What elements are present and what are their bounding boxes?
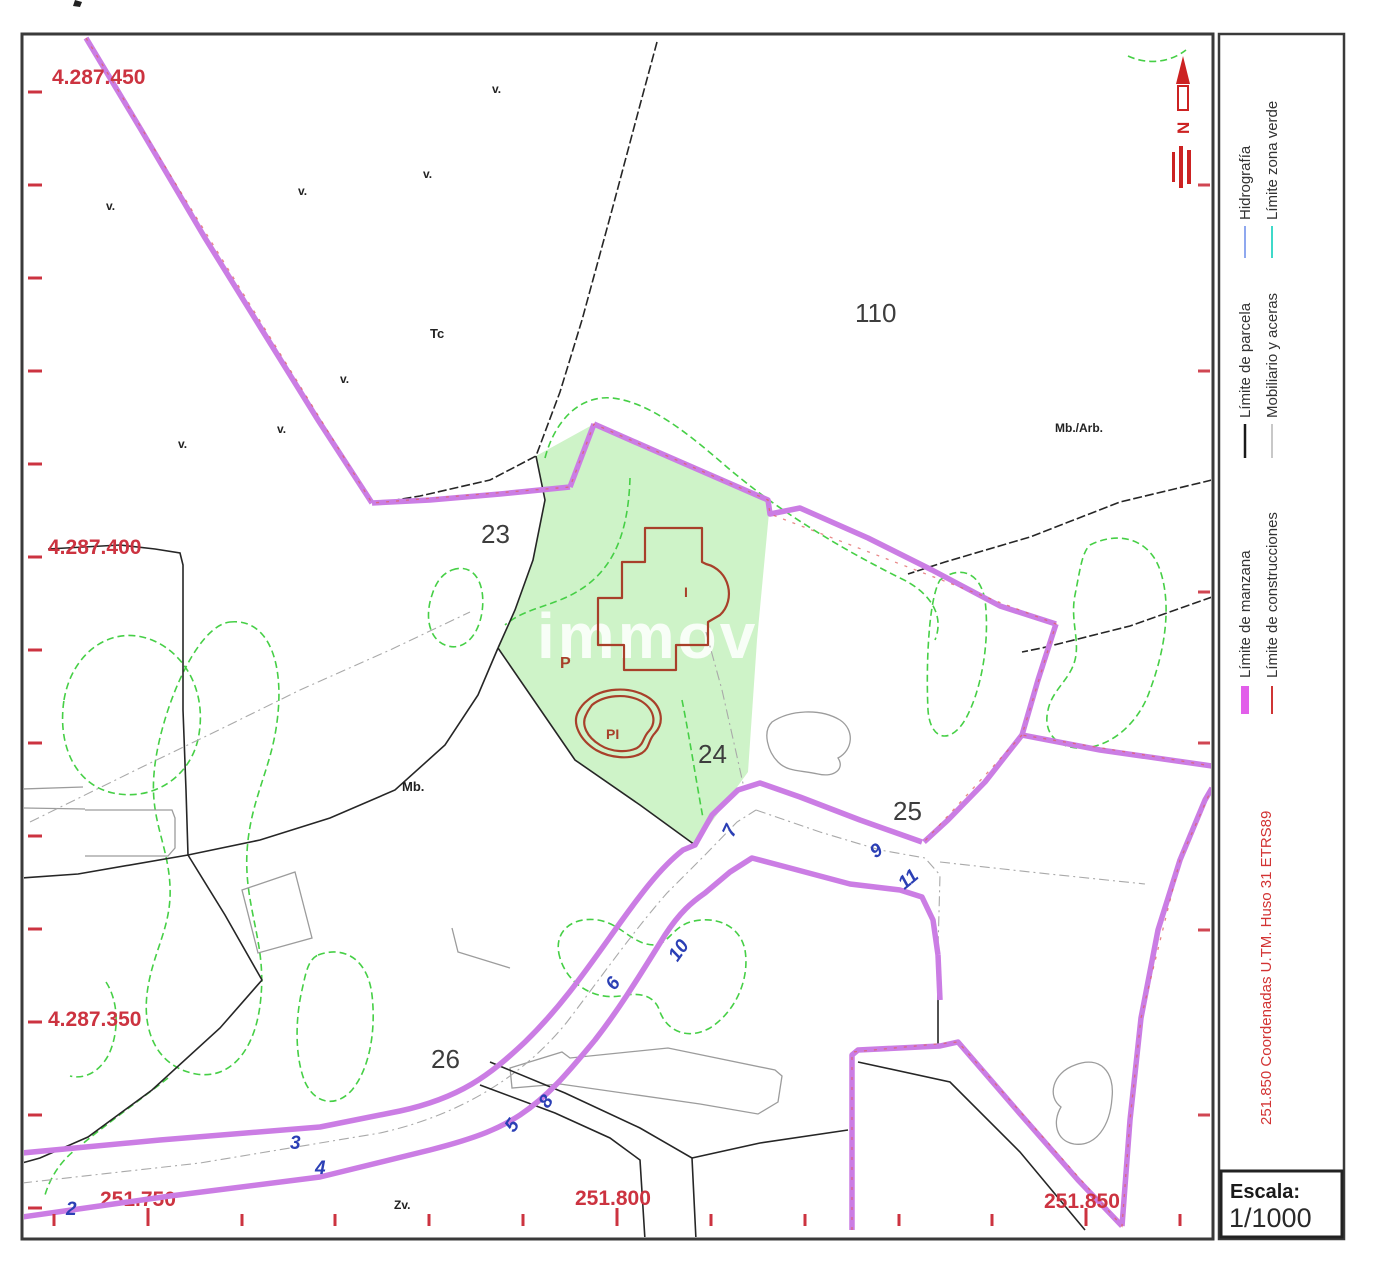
parcel-label-24: 24: [698, 739, 727, 769]
north-letter: N: [1174, 122, 1193, 134]
crop-artifact: [73, 0, 82, 7]
coordinate-label-x-251800: 251.800: [575, 1187, 651, 1210]
mb-annotation: Mb.: [402, 779, 424, 794]
vegetation-mark: v.: [277, 422, 286, 436]
svg-text:Límite de parcela: Límite de parcela: [1237, 302, 1254, 418]
parcel-label-25: 25: [893, 796, 922, 826]
vegetation-mark: v.: [492, 82, 501, 96]
cadastral-map-page: immovi: [0, 0, 1400, 1271]
scale-label: Escala:: [1230, 1181, 1300, 1203]
svg-text:Mobiliario y aceras: Mobiliario y aceras: [1264, 293, 1281, 418]
pool-label: PI: [606, 726, 619, 742]
scale-value: 1/1000: [1229, 1203, 1312, 1233]
svg-text:Límite de manzana: Límite de manzana: [1237, 550, 1254, 678]
coordinate-label-x-251850: 251.850: [1044, 1190, 1120, 1213]
svg-text:Hidrografía: Hidrografía: [1237, 145, 1254, 220]
parcel-label-110: 110: [855, 298, 896, 328]
coordinates-note: 251.850 Coordenadas U.TM. Huso 31 ETRS89: [1258, 811, 1275, 1125]
svg-text:Límite de construcciones: Límite de construcciones: [1264, 512, 1281, 678]
scale-box: Escala: 1/1000: [1221, 1171, 1342, 1237]
vegetation-mark: v.: [340, 372, 349, 386]
vegetation-mark: v.: [298, 184, 307, 198]
vegetation-mark: v.: [178, 437, 187, 451]
coordinate-label-y-4287350: 4.287.350: [48, 1008, 141, 1031]
zv-annotation: Zv.: [394, 1198, 410, 1212]
street-number: 2: [65, 1199, 77, 1220]
map-svg: immovi: [0, 0, 1400, 1271]
parcel-label-26: 26: [431, 1044, 460, 1074]
svg-text:Límite zona verde: Límite zona verde: [1264, 101, 1281, 220]
street-number: 3: [290, 1133, 301, 1154]
vegetation-mark: v.: [423, 167, 432, 181]
patio-label: P: [560, 655, 571, 672]
coordinate-label-y-4287400: 4.287.400: [48, 536, 141, 559]
street-number: 4: [314, 1158, 326, 1179]
building-label: I: [684, 584, 688, 600]
parcel-label-23: 23: [481, 519, 510, 549]
watermark: immovi: [537, 600, 779, 672]
vegetation-mark: v.: [106, 199, 115, 213]
mb-arb-annotation: Mb./Arb.: [1055, 421, 1103, 435]
tc-annotation: Tc: [430, 326, 444, 341]
coordinate-label-y-4287450: 4.287.450: [52, 66, 145, 89]
